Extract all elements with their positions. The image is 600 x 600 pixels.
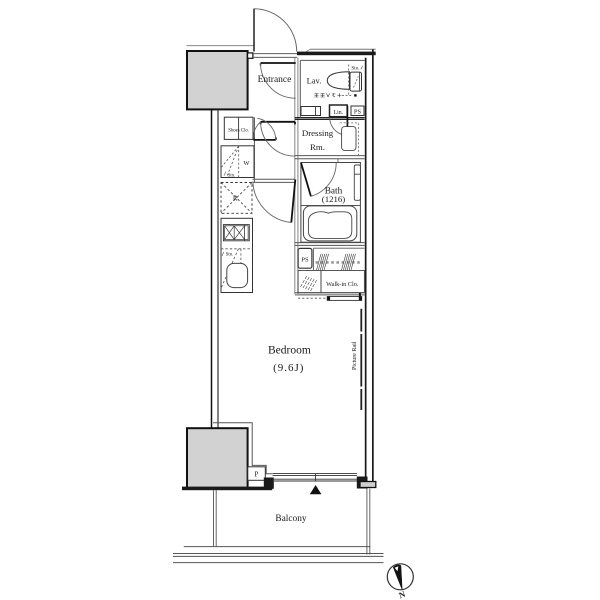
svg-text:Sto.: Sto.	[226, 253, 234, 258]
svg-text:(9.6J): (9.6J)	[273, 362, 304, 374]
svg-text:PS: PS	[354, 109, 362, 116]
svg-text:Lin.: Lin.	[334, 110, 344, 116]
svg-text:R: R	[233, 195, 238, 203]
svg-text:Sto.: Sto.	[351, 66, 359, 72]
svg-text:Balcony: Balcony	[275, 514, 307, 524]
svg-text:P: P	[255, 471, 259, 479]
svg-text:Walk-in Clo.: Walk-in Clo.	[326, 281, 359, 288]
svg-text:Bedroom: Bedroom	[268, 345, 311, 357]
svg-text:Shoes Clo.: Shoes Clo.	[228, 128, 249, 133]
svg-text:Picture Rail: Picture Rail	[352, 341, 358, 370]
svg-text:Lav.: Lav.	[307, 76, 322, 86]
svg-text:Sto.: Sto.	[228, 173, 236, 178]
svg-text:Entrance: Entrance	[258, 75, 292, 85]
svg-text:(1216): (1216)	[322, 194, 346, 204]
svg-text:Dressing: Dressing	[302, 128, 334, 138]
svg-text:PS: PS	[301, 257, 309, 264]
svg-text:Rm.: Rm.	[310, 142, 325, 152]
svg-text:W: W	[243, 160, 250, 167]
